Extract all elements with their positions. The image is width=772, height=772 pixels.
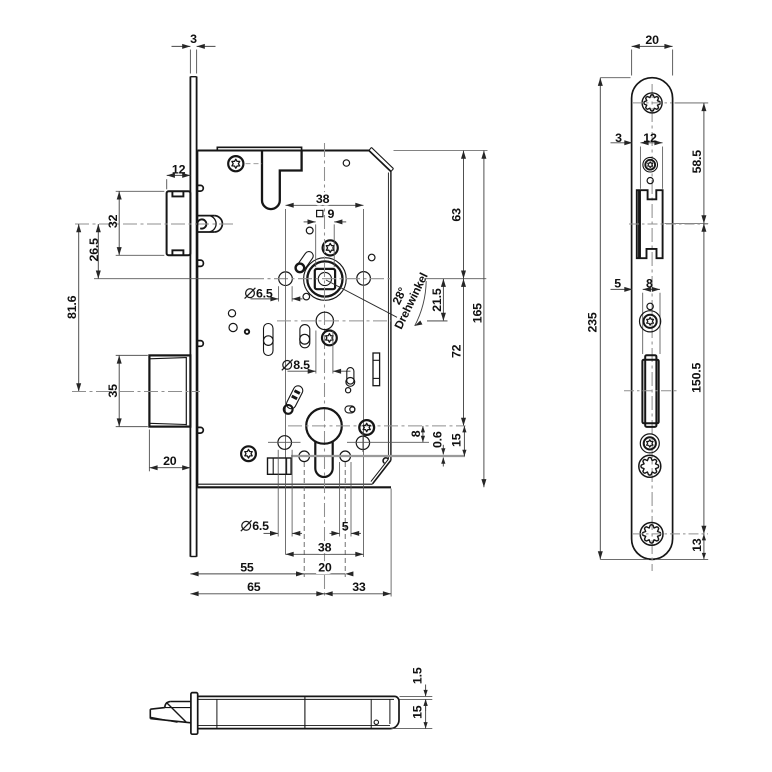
svg-text:8.5: 8.5 [293,358,310,372]
svg-text:15: 15 [410,705,424,719]
svg-text:3: 3 [190,32,197,46]
svg-text:12: 12 [172,162,186,176]
svg-text:9: 9 [328,207,335,221]
svg-text:81.6: 81.6 [65,295,79,319]
svg-text:65: 65 [247,580,261,594]
svg-text:0.6: 0.6 [430,431,444,448]
svg-text:13: 13 [690,538,704,552]
svg-text:235: 235 [585,312,599,332]
svg-text:26.5: 26.5 [87,238,101,262]
svg-text:32: 32 [106,214,120,228]
svg-text:20: 20 [163,454,177,468]
svg-text:6.5: 6.5 [256,286,273,300]
svg-text:38: 38 [318,540,332,554]
svg-text:63: 63 [450,208,464,222]
svg-text:20: 20 [645,33,659,47]
svg-text:6.5: 6.5 [252,519,269,533]
svg-text:3: 3 [615,131,622,145]
svg-text:20: 20 [318,560,332,574]
svg-text:21.5: 21.5 [430,288,444,312]
svg-text:150.5: 150.5 [690,362,704,392]
svg-text:55: 55 [240,560,254,574]
svg-text:58.5: 58.5 [690,150,704,174]
svg-text:12: 12 [643,131,657,145]
svg-text:35: 35 [106,384,120,398]
svg-text:38: 38 [316,192,330,206]
svg-text:72: 72 [450,344,464,358]
svg-text:1.5: 1.5 [410,667,424,684]
svg-text:15: 15 [449,433,463,447]
svg-text:5: 5 [614,276,621,290]
svg-text:8: 8 [409,430,423,437]
svg-text:8: 8 [646,276,653,290]
svg-text:165: 165 [471,303,485,323]
svg-text:33: 33 [352,580,366,594]
svg-text:5: 5 [342,519,349,533]
